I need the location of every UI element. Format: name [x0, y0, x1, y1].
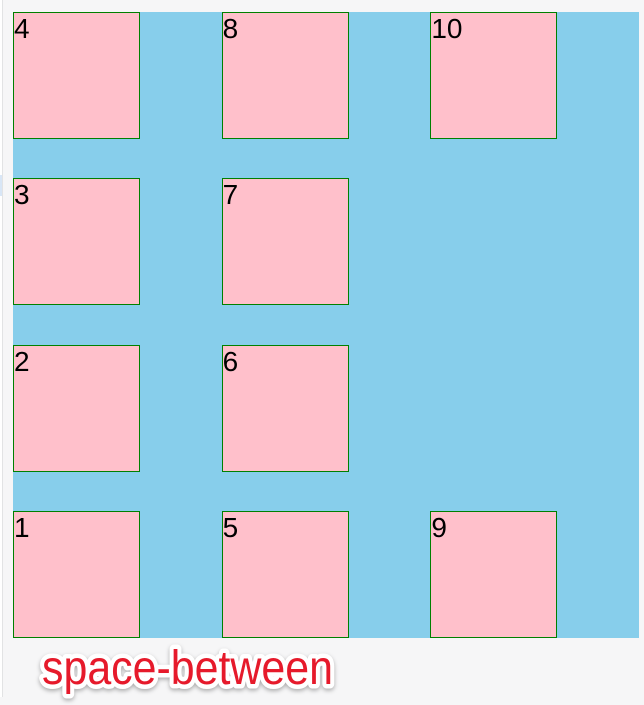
svg-text:space-between: space-between	[42, 642, 333, 695]
